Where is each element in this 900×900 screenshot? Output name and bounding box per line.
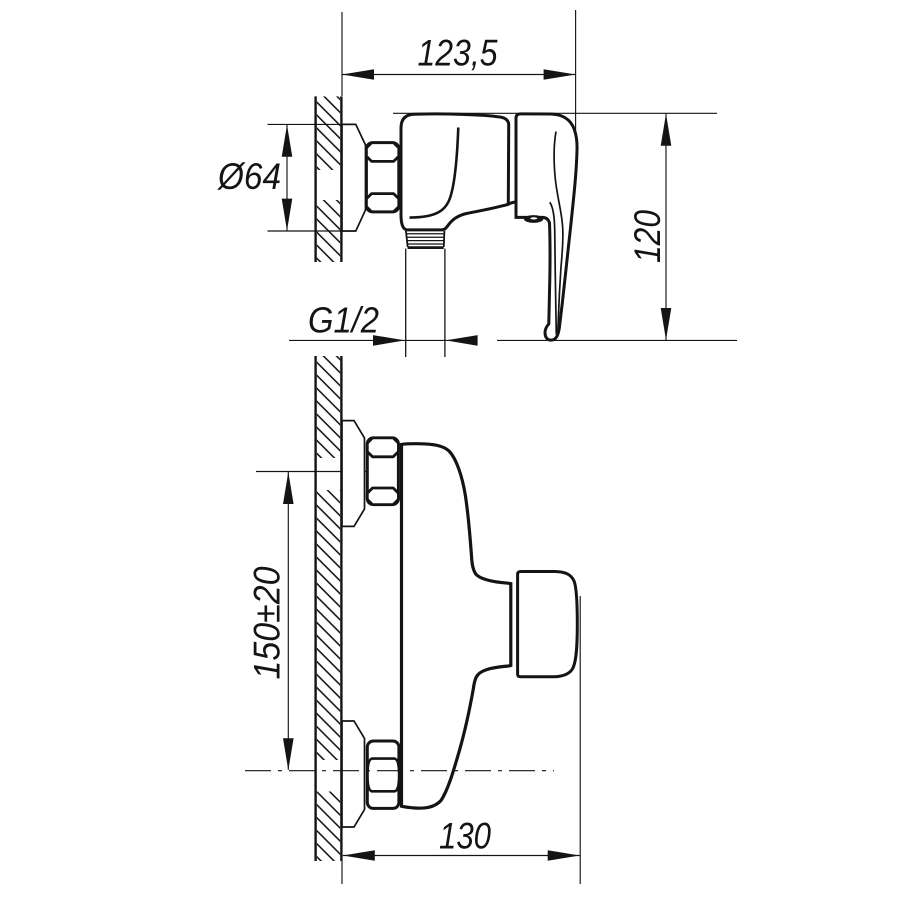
svg-text:G1/2: G1/2 xyxy=(308,300,379,341)
svg-text:123,5: 123,5 xyxy=(418,33,498,74)
svg-text:130: 130 xyxy=(439,816,491,857)
svg-text:120: 120 xyxy=(627,210,668,263)
svg-text:150±20: 150±20 xyxy=(247,566,288,679)
svg-text:Ø64: Ø64 xyxy=(216,156,281,197)
